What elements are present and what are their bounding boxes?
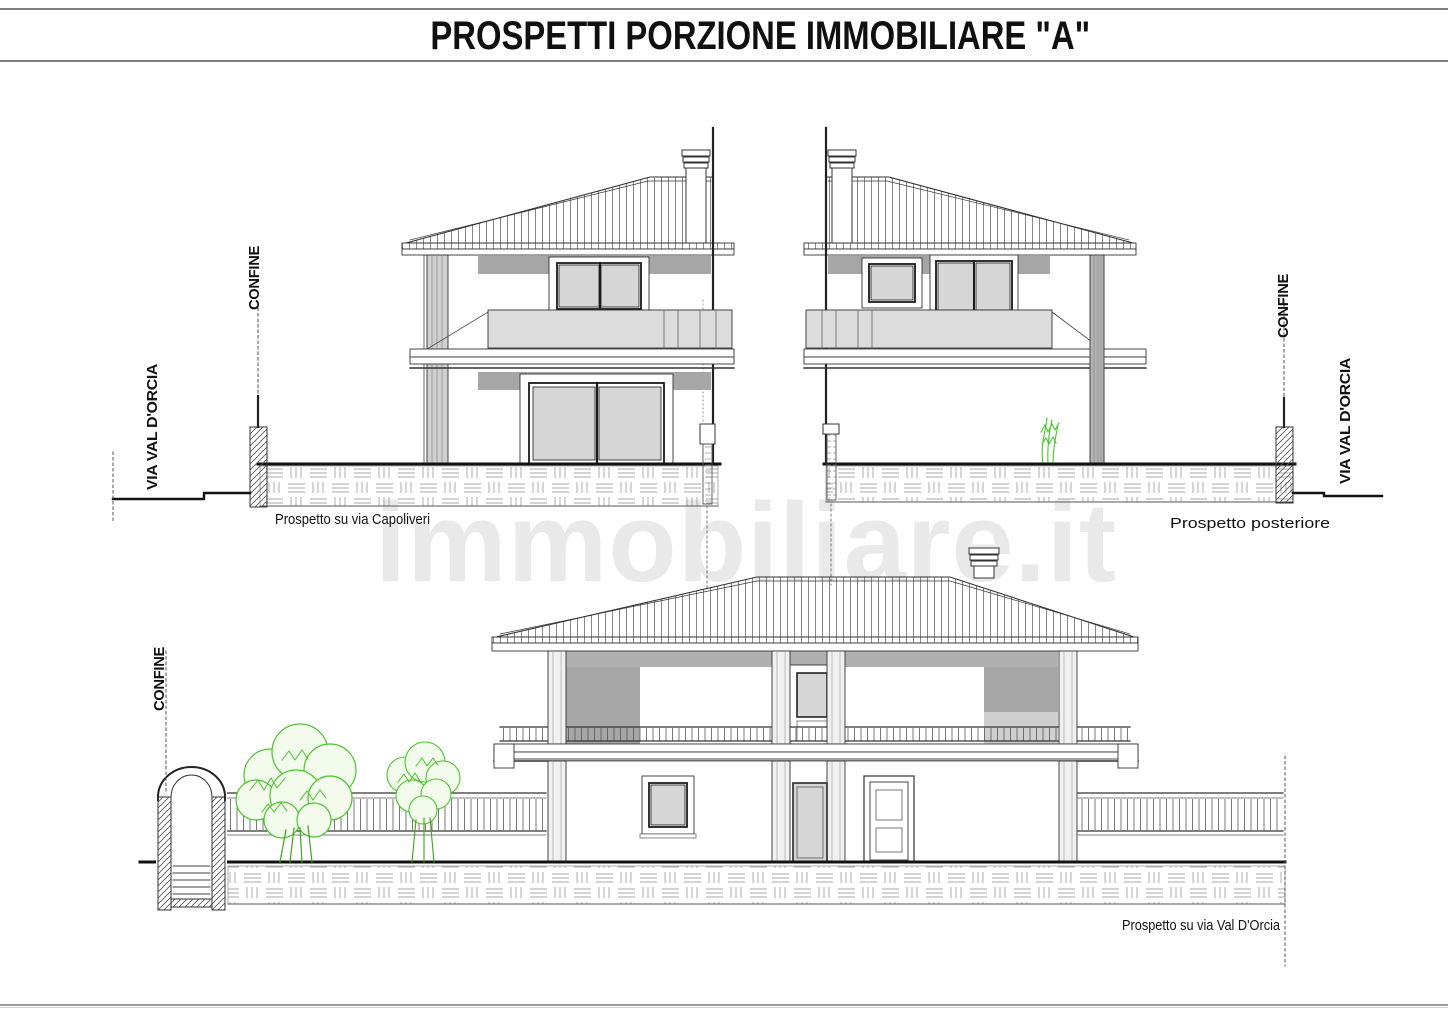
caption-rear: Prospetto posteriore [1170,515,1330,532]
chimney [969,548,999,578]
ground-and-wall [140,862,1285,904]
drawing-sheet: immobiliare.it PROSPETTI PORZIONE IMMOBI… [0,0,1448,1024]
glass-door [793,783,827,862]
tree-large [236,724,356,862]
tree-small [387,742,460,862]
fence-right [1078,793,1283,835]
roof [402,177,734,255]
ground-window [640,776,696,838]
page-title: PROSPETTI PORZIONE IMMOBILIARE "A" [430,14,1090,59]
confine-label-bottom: CONFINE [151,647,168,711]
upper-small-window [862,258,922,308]
elevation-side [140,548,1285,966]
confine-label-top-right: CONFINE [1275,274,1292,338]
corner-pillar [1090,255,1104,464]
street-line [113,452,250,521]
roof [804,177,1136,255]
chimney [828,150,856,243]
upper-window [549,257,649,312]
title-band: PROSPETTI PORZIONE IMMOBILIARE "A" [0,14,1448,59]
arched-well [156,767,227,912]
ground-and-wall [824,464,1295,502]
upper-sliding-door [930,255,1018,312]
street-label-top-left: VIA VAL D'ORCIA [144,364,161,490]
roof [492,577,1138,651]
caption-front: Prospetto su via Capoliveri [275,511,430,528]
street-line [1293,493,1382,496]
ground-and-wall [258,464,720,506]
confine-label-top-left: CONFINE [246,246,263,310]
caption-side: Prospetto su via Val D'Orcia [1122,917,1281,934]
panel-door [864,776,914,862]
balcony-railing [500,727,1130,741]
street-label-top-right: VIA VAL D'ORCIA [1337,358,1354,484]
elevations-drawing: Prospetto su via Capoliveri Prospetto po… [0,0,1448,1024]
chimney [682,150,710,243]
lower-window [520,374,673,464]
boundary-post [250,308,267,507]
